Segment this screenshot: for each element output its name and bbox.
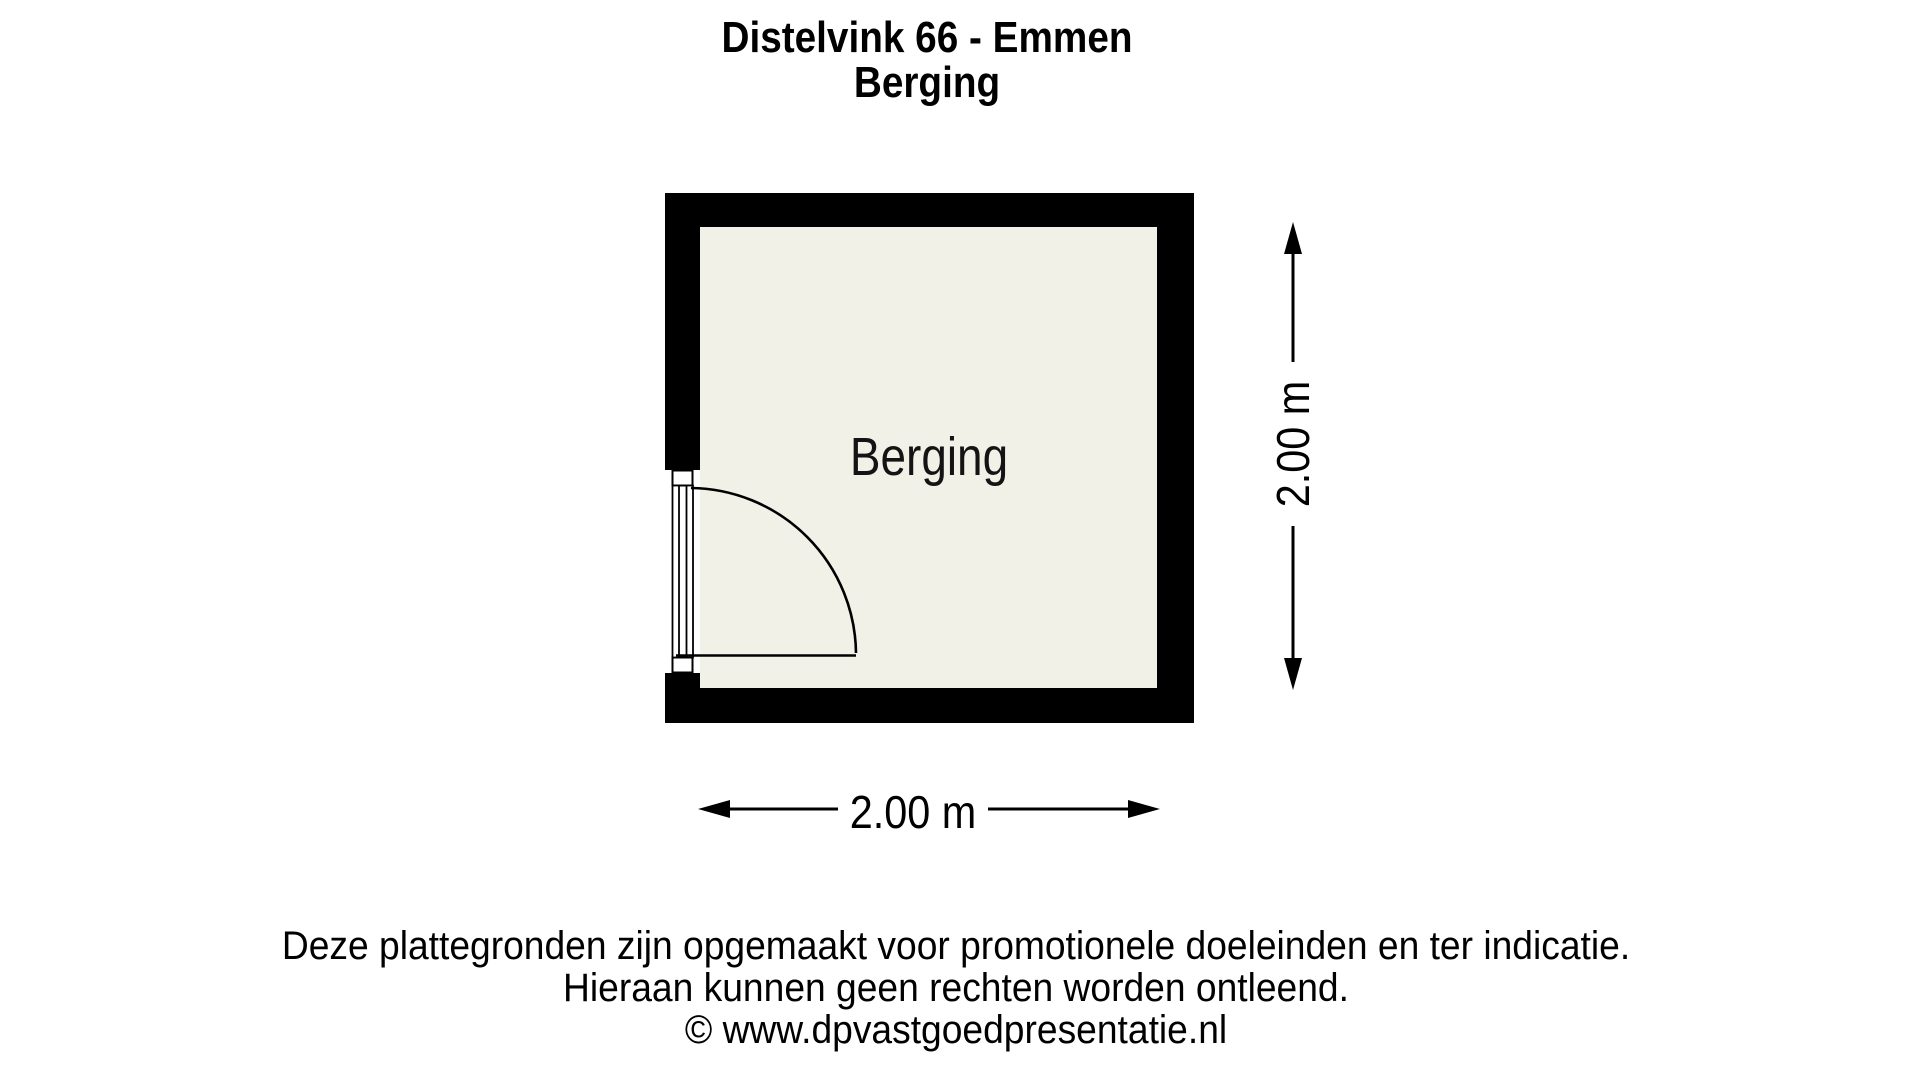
door-opening <box>664 470 700 673</box>
floorplan-page: Distelvink 66 - Emmen Berging <box>0 0 1920 1080</box>
copyright-line: © www.dpvastgoedpresentatie.nl <box>282 1009 1630 1051</box>
height-dimension-arrowhead-up <box>1284 222 1302 254</box>
width-dimension-arrowhead-right <box>1128 800 1160 818</box>
door-jamb-top <box>673 471 693 486</box>
floorplan-drawing <box>0 0 1920 1080</box>
width-dimension-label: 2.00 m <box>850 785 977 839</box>
room-name-label: Berging <box>850 426 1008 488</box>
disclaimer-line-2: Hieraan kunnen geen rechten worden ontle… <box>282 967 1630 1009</box>
height-dimension-arrowhead-down <box>1284 658 1302 690</box>
height-dimension-label: 2.00 m <box>1266 381 1320 508</box>
width-dimension-arrowhead-left <box>698 800 730 818</box>
door-frame-outer-rail <box>673 486 680 658</box>
disclaimer: Deze plattegronden zijn opgemaakt voor p… <box>231 925 1681 1051</box>
door-frame-inner-rail <box>687 486 694 658</box>
disclaimer-line-1: Deze plattegronden zijn opgemaakt voor p… <box>282 925 1630 967</box>
door-jamb-bottom <box>673 658 693 673</box>
